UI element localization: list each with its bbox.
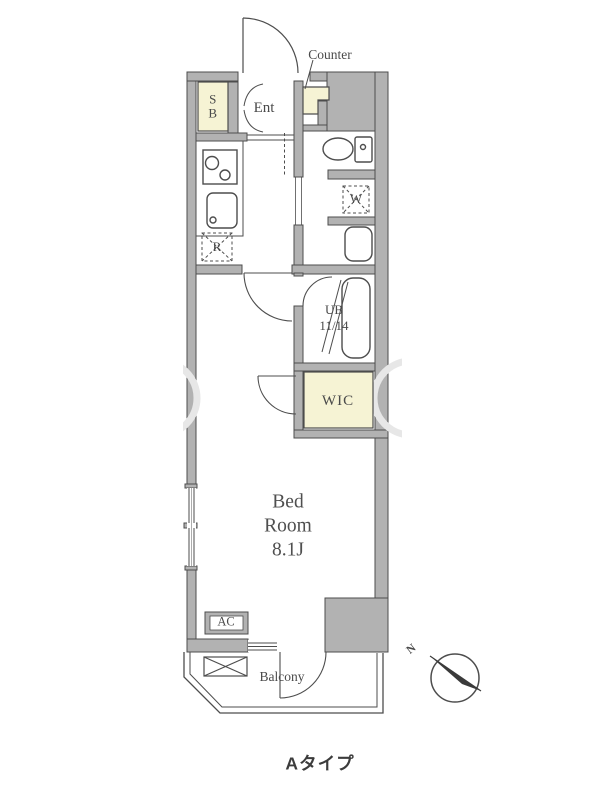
vanity-sink-icon [345,227,372,261]
sanitary-door-opening [296,177,302,225]
window-left [187,488,196,566]
hatch-box [204,657,247,676]
bedroom-size: 8.1J [264,538,312,562]
entrance-step-line [247,135,294,140]
bedroom-label: Bed Room 8.1J [264,490,312,561]
unit-bath-name: UB [319,302,348,318]
shoe-box-label: S B [208,93,217,122]
shoe-box-label-line1: S [208,93,217,107]
wic-door-arc [258,376,296,414]
entrance-label: Ent [254,99,275,117]
bedroom-label-line2: Room [264,514,312,538]
shoe-box-label-line2: B [208,107,217,121]
counter-label: Counter [308,47,352,63]
unit-bath-size: 11/14 [319,318,348,334]
wic-label: WIC [322,392,354,410]
stove-icon [203,150,237,184]
plan-title: Aタイプ [285,754,354,775]
washer-label: W [350,191,362,207]
floorplan-page: Counter S B Ent R W UB 11/14 WIC Bed Roo… [0,0,600,800]
ac-label: AC [217,615,234,630]
balcony-label: Balcony [260,669,305,685]
sink-icon [207,193,237,228]
unit-bath-label: UB 11/14 [319,302,348,335]
refrigerator-label: R [213,239,222,255]
kitchen-counter [196,141,243,236]
window-bottom [248,640,277,652]
watermark [123,361,448,435]
bedroom-label-line1: Bed [264,490,312,514]
bedroom-door-arc [244,273,292,321]
compass-icon [430,654,481,702]
toilet-icon [323,137,372,162]
